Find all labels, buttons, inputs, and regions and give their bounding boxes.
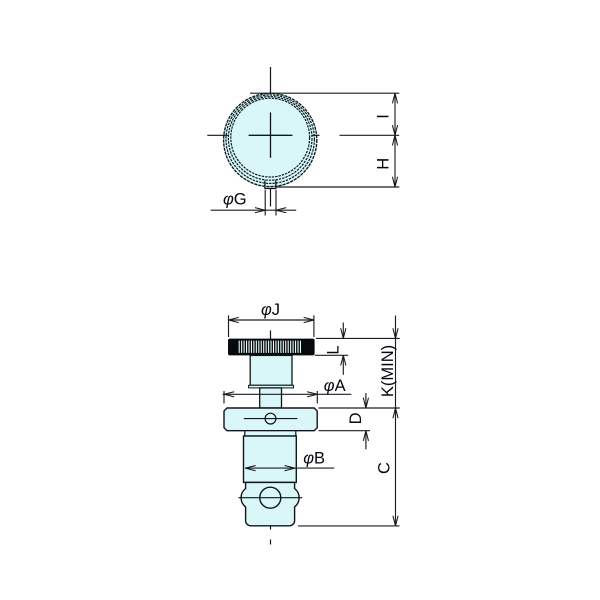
- svg-text:φG: φG: [223, 190, 247, 208]
- svg-text:φB: φB: [303, 450, 325, 468]
- svg-text:L: L: [324, 345, 342, 354]
- svg-text:φJ: φJ: [261, 301, 280, 319]
- svg-text:D: D: [347, 412, 365, 424]
- svg-text:φA: φA: [324, 377, 346, 395]
- svg-text:I: I: [375, 114, 393, 119]
- svg-text:C: C: [375, 462, 393, 474]
- svg-text:K(MIN): K(MIN): [379, 345, 397, 397]
- svg-text:H: H: [375, 158, 393, 170]
